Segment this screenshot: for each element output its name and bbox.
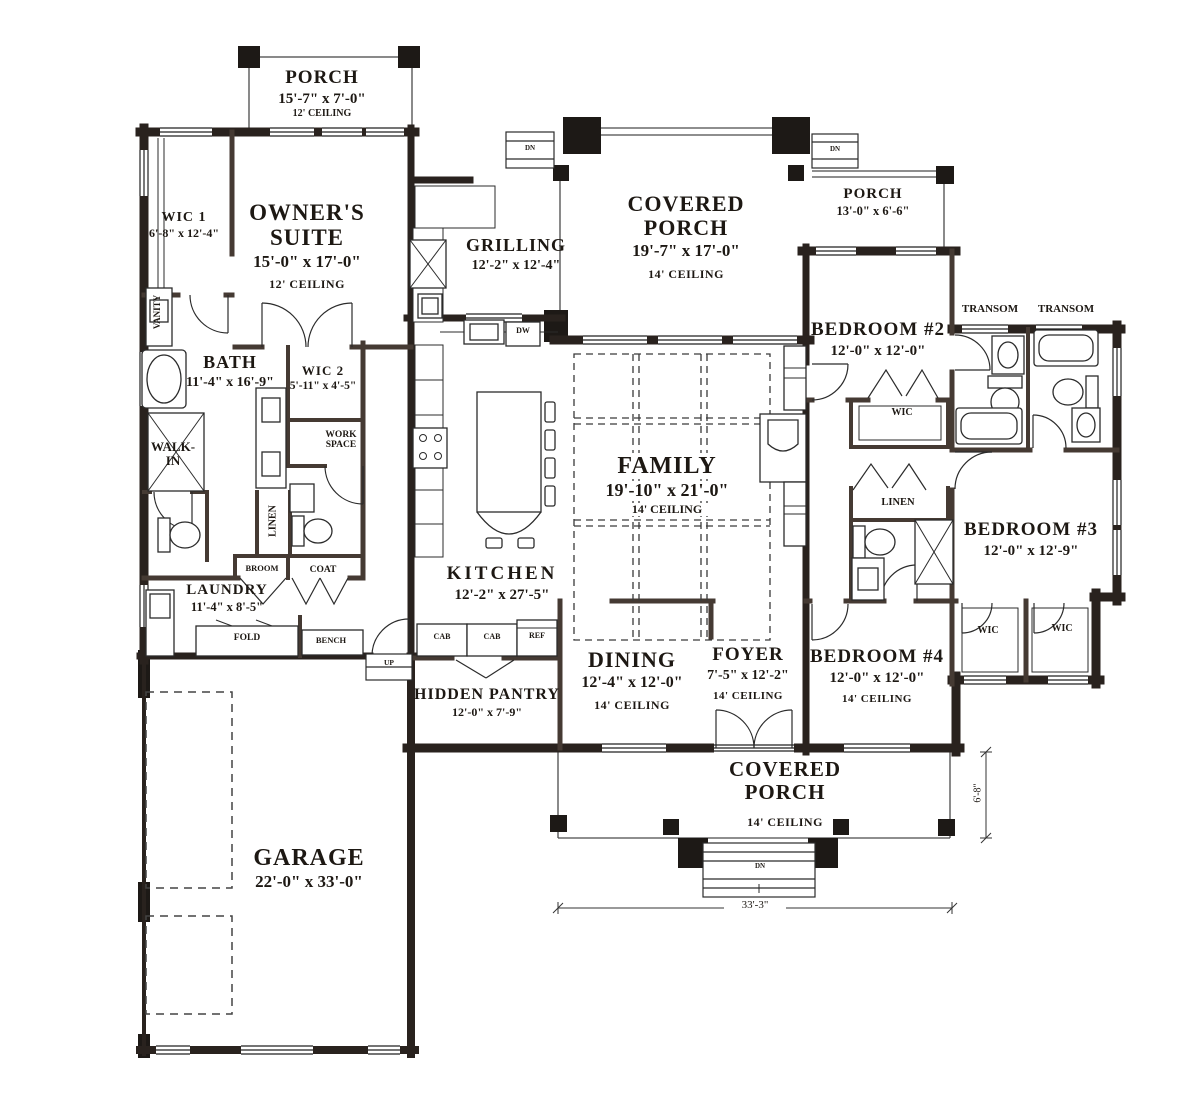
- room-label-bedroom2: BEDROOM #2 12'-0" x 12'-0": [811, 320, 945, 359]
- wic-text: WIC: [891, 407, 912, 418]
- room-label-laundry: LAUNDRY 11'-4" x 8'-5": [186, 582, 267, 614]
- room-name: LAUNDRY: [186, 582, 267, 599]
- label-stairs-dn-bottom: DN: [755, 863, 765, 871]
- room-dims: 22'-0" x 33'-0": [253, 873, 364, 892]
- room-label-garage: GARAGE 22'-0" x 33'-0": [253, 845, 364, 892]
- room-ceiling: 14' CEILING: [606, 503, 729, 516]
- dimension-overall-width: 33'-3": [742, 899, 769, 911]
- room-label-covered-porch-bottom: COVERED PORCH 14' CEILING: [695, 758, 875, 829]
- label-stairs-up: UP: [384, 659, 394, 667]
- room-name: COVERED PORCH: [695, 758, 875, 804]
- room-label-porch-top-right: PORCH 13'-0" x 6'-6": [837, 186, 910, 218]
- room-ceiling: 14' CEILING: [581, 699, 682, 712]
- room-dims: 7'-5" x 12'-2": [707, 668, 789, 683]
- room-dims: 6'-8" x 12'-4": [149, 227, 219, 240]
- room-label-foyer: FOYER 7'-5" x 12'-2" 14' CEILING: [707, 645, 789, 702]
- vanity-text: VANITY: [152, 295, 162, 329]
- work-space-line2: SPACE: [325, 440, 356, 450]
- room-label-bath: BATH 11'-4" x 16'-9": [186, 353, 274, 390]
- room-name: GRILLING: [466, 236, 566, 256]
- cab-text: CAB: [434, 632, 451, 641]
- dn-text: DN: [525, 144, 535, 152]
- room-dims: 15'-7" x 7'-0": [278, 91, 365, 108]
- room-ceiling: 14' CEILING: [810, 693, 944, 705]
- label-ref: REF: [529, 632, 545, 641]
- room-name: PORCH: [837, 186, 910, 203]
- room-dims: 12'-0" x 12'-9": [964, 543, 1098, 560]
- label-transom-left: TRANSOM: [962, 303, 1018, 315]
- room-label-dining: DINING 12'-4" x 12'-0" 14' CEILING: [581, 648, 682, 712]
- room-label-kitchen: KITCHEN 12'-2" x 27'-5": [447, 564, 558, 603]
- room-name: BATH: [186, 353, 274, 373]
- room-name: OWNER'S SUITE: [222, 200, 392, 251]
- room-ceiling: 12' CEILING: [222, 278, 392, 291]
- label-linen-hall: LINEN: [881, 497, 914, 509]
- room-dims: 12'-0" x 12'-0": [811, 343, 945, 360]
- label-fold: FOLD: [234, 633, 260, 643]
- room-dims: 12'-2" x 12'-4": [466, 258, 566, 273]
- dn-text: DN: [755, 862, 765, 870]
- room-name: COVERED PORCH: [596, 192, 776, 240]
- room-ceiling: 14' CEILING: [596, 268, 776, 281]
- linen-text: LINEN: [268, 505, 279, 537]
- room-name: BEDROOM #3: [964, 520, 1098, 541]
- dn-text: DN: [830, 145, 840, 153]
- label-broom: BROOM: [245, 564, 278, 573]
- room-label-grilling: GRILLING 12'-2" x 12'-4": [466, 236, 566, 273]
- wic-text: WIC: [1051, 623, 1072, 634]
- wic-text: WIC: [977, 625, 998, 636]
- linen-text: LINEN: [881, 497, 914, 508]
- label-wic-bedroom2: WIC: [891, 407, 912, 418]
- label-dishwasher: DW: [516, 327, 530, 336]
- room-label-hidden-pantry: HIDDEN PANTRY 12'-0" x 7'-9": [414, 686, 560, 719]
- label-transom-right: TRANSOM: [1038, 303, 1094, 315]
- walk-in-line2: IN: [151, 454, 195, 468]
- room-dims: 12'-4" x 12'-0": [581, 674, 682, 692]
- bench-text: BENCH: [316, 635, 346, 645]
- work-space-line1: WORK: [325, 430, 356, 440]
- room-name: FAMILY: [606, 453, 729, 479]
- room-label-wic1: WIC 1 6'-8" x 12'-4": [149, 210, 219, 241]
- label-wic-bottom-right: WIC: [1051, 623, 1072, 634]
- up-text: UP: [384, 658, 394, 667]
- label-walk-in: WALK- IN: [151, 440, 195, 469]
- label-work-space: WORK SPACE: [325, 430, 356, 451]
- fold-text: FOLD: [234, 633, 260, 643]
- room-name: PORCH: [278, 68, 365, 89]
- room-name: GARAGE: [253, 845, 364, 871]
- room-dims: 19'-10" x 21'-0": [606, 481, 729, 501]
- room-dims: 12'-0" x 7'-9": [414, 706, 560, 719]
- room-name: HIDDEN PANTRY: [414, 686, 560, 704]
- room-name: WIC 1: [149, 210, 219, 225]
- room-label-bedroom4: BEDROOM #4 12'-0" x 12'-0" 14' CEILING: [810, 647, 944, 705]
- label-coat: COAT: [310, 565, 337, 575]
- label-bench: BENCH: [316, 636, 346, 645]
- coat-text: COAT: [310, 565, 337, 575]
- label-cab-2: CAB: [484, 633, 501, 642]
- room-name: BEDROOM #2: [811, 320, 945, 341]
- room-label-bedroom3: BEDROOM #3 12'-0" x 12'-9": [964, 520, 1098, 559]
- transom-text: TRANSOM: [962, 303, 1018, 315]
- transom-text: TRANSOM: [1038, 303, 1094, 315]
- dimension-text: 6'-8": [973, 783, 984, 802]
- room-ceiling: 14' CEILING: [695, 816, 875, 829]
- room-dims: 12'-2" x 27'-5": [447, 587, 558, 604]
- ref-text: REF: [529, 631, 545, 640]
- label-stairs-dn-top-left: DN: [525, 145, 535, 153]
- broom-text: BROOM: [245, 563, 278, 573]
- room-dims: 13'-0" x 6'-6": [837, 205, 910, 219]
- room-ceiling: 14' CEILING: [707, 690, 789, 702]
- room-dims: 19'-7" x 17'-0": [596, 242, 776, 261]
- room-dims: 11'-4" x 8'-5": [186, 601, 267, 615]
- room-label-covered-porch-top: COVERED PORCH 19'-7" x 17'-0" 14' CEILIN…: [596, 192, 776, 281]
- label-cab-1: CAB: [434, 633, 451, 642]
- porch-posts: [138, 46, 955, 1058]
- room-dims: 15'-0" x 17'-0": [222, 253, 392, 272]
- room-dims: 12'-0" x 12'-0": [810, 670, 944, 687]
- room-name: DINING: [581, 648, 682, 672]
- label-stairs-dn-top-right: DN: [830, 146, 840, 154]
- room-dims: 5'-11" x 4'-5": [290, 380, 356, 393]
- floor-plan-page: PORCH 15'-7" x 7'-0" 12' CEILING OWNER'S…: [0, 0, 1200, 1106]
- room-name: WIC 2: [290, 364, 356, 378]
- label-vanity: VANITY: [153, 295, 163, 329]
- room-label-owners-suite: OWNER'S SUITE 15'-0" x 17'-0" 12' CEILIN…: [222, 200, 392, 291]
- room-label-porch-top-left: PORCH 15'-7" x 7'-0" 12' CEILING: [278, 68, 365, 119]
- label-linen-owners: LINEN: [268, 505, 279, 537]
- room-name: BEDROOM #4: [810, 647, 944, 668]
- walk-in-line1: WALK-: [151, 440, 195, 454]
- cab-text: CAB: [484, 632, 501, 641]
- room-dims: 11'-4" x 16'-9": [186, 375, 274, 390]
- garage-dashed-areas: [146, 692, 232, 1014]
- room-ceiling: 12' CEILING: [278, 108, 365, 119]
- room-name: FOYER: [707, 645, 789, 666]
- label-wic-bottom-left: WIC: [977, 625, 998, 636]
- room-label-family: FAMILY 19'-10" x 21'-0" 14' CEILING: [606, 453, 729, 516]
- dimension-porch-depth: 6'-8": [973, 783, 984, 802]
- room-name: KITCHEN: [447, 564, 558, 585]
- room-label-wic2: WIC 2 5'-11" x 4'-5": [290, 364, 356, 393]
- dimension-text: 33'-3": [742, 899, 769, 911]
- dw-text: DW: [516, 326, 530, 335]
